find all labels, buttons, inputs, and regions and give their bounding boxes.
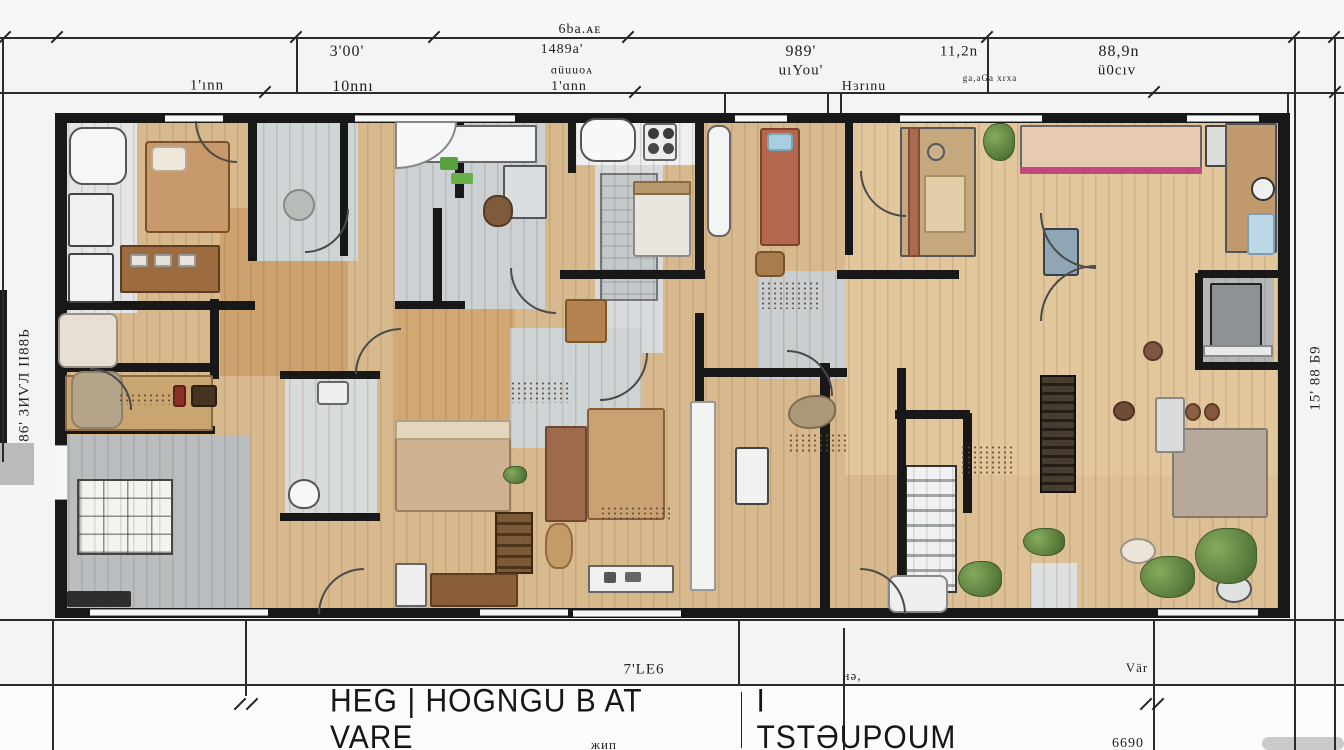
dimension-tick xyxy=(246,698,259,711)
wall-segment xyxy=(340,113,348,256)
dimension-text: 6690 xyxy=(1112,736,1144,750)
washer-bottom xyxy=(735,447,769,505)
wall-segment xyxy=(1195,273,1203,370)
dimension-text: 11,2n xyxy=(940,44,978,61)
pot-b xyxy=(1113,401,1135,421)
bed-center xyxy=(587,408,665,520)
side-table xyxy=(755,251,785,277)
cabinet-row xyxy=(120,245,220,293)
plant xyxy=(503,466,527,484)
dimension-text: ü0cıv xyxy=(1098,63,1136,80)
dimension-line xyxy=(0,37,1344,39)
tv-unit xyxy=(1210,283,1262,351)
pink-strip xyxy=(1020,167,1202,174)
sofa-cushions xyxy=(58,313,118,368)
floor-texture-marks xyxy=(960,445,1015,475)
wall-segment xyxy=(568,113,576,173)
window-opening xyxy=(900,115,1042,122)
dark-jars xyxy=(191,385,217,407)
basket xyxy=(545,523,573,569)
toilet xyxy=(288,479,320,509)
dimension-text: ga,aGa xrxa xyxy=(963,73,1017,83)
floor-texture-marks xyxy=(510,381,572,403)
wall-segment xyxy=(895,410,970,419)
dimension-text: uıYou' xyxy=(779,63,824,80)
dimension-line xyxy=(2,37,4,462)
title-block: HEG | HOGNGU B AT VARE I TSTƏUPOUM xyxy=(330,688,970,750)
plant xyxy=(1195,528,1257,584)
bathtub-vertical xyxy=(707,125,731,237)
wall-segment xyxy=(248,113,257,261)
plant xyxy=(958,561,1002,597)
kitchen-cabinets-right xyxy=(1020,125,1202,171)
window-opening xyxy=(480,609,568,616)
pot-d xyxy=(1204,403,1220,421)
washer-b xyxy=(68,253,114,303)
wall-segment xyxy=(1198,270,1282,278)
dimension-line xyxy=(738,619,740,685)
burner-c xyxy=(648,143,659,154)
bookcase-dark xyxy=(1040,375,1076,493)
dimension-line xyxy=(987,37,989,93)
mosaic-strip xyxy=(908,127,920,257)
tv-strip xyxy=(1203,345,1273,357)
cabinet-door-b xyxy=(154,254,172,267)
dimension-text: 15' 88 Б9 xyxy=(1308,345,1325,410)
wall-segment xyxy=(837,270,959,279)
dimension-text: Hɜrınu xyxy=(842,79,887,95)
dimension-text: 88,9n xyxy=(1099,43,1140,61)
floor-texture-marks xyxy=(760,281,818,309)
burner-d xyxy=(663,143,674,154)
window-opening xyxy=(90,609,268,616)
wall-segment xyxy=(280,513,380,521)
dimension-text: 86' ЗИѴЛ ІІ88Ь xyxy=(17,328,34,442)
garage-strip xyxy=(67,591,131,607)
bathtub-top xyxy=(580,118,636,162)
pillow-tl xyxy=(151,146,187,172)
window-opening xyxy=(1158,609,1258,616)
dimension-text: ɑüuuoᴀ xyxy=(551,63,593,78)
dimension-line xyxy=(827,92,829,114)
dimension-text: ʜə, xyxy=(843,668,862,684)
fridge-bottom xyxy=(395,563,427,607)
staircase xyxy=(905,465,957,593)
counter-bottom xyxy=(430,573,518,607)
plant xyxy=(1023,528,1065,556)
door-swing-arc xyxy=(355,328,401,374)
green-item-a xyxy=(440,157,458,170)
title-text-right: I TSTƏUPOUM xyxy=(756,683,970,750)
sink xyxy=(317,381,349,405)
title-text-left: HEG | HOGNGU B AT VARE xyxy=(330,683,727,750)
shower-glass xyxy=(1247,213,1275,255)
wall-segment xyxy=(845,113,853,255)
floor-texture-marks xyxy=(788,433,850,453)
shower-panel xyxy=(924,175,966,233)
blueprint-canvas: 1'ınn3'00'10nnı6ba.ᴀᴇ1489a'ɑüuuoᴀ1'ɑnn98… xyxy=(0,0,1344,750)
green-item-b xyxy=(451,173,473,184)
floor-texture-marks xyxy=(600,506,672,522)
dimension-line xyxy=(1153,619,1155,750)
dimension-line xyxy=(840,92,842,114)
window-opening xyxy=(1187,115,1259,122)
title-divider xyxy=(741,692,743,748)
plant xyxy=(1140,556,1195,598)
wall-segment xyxy=(1198,362,1282,370)
dimension-line xyxy=(1334,37,1336,750)
burner-b xyxy=(663,128,674,139)
burner-a xyxy=(648,128,659,139)
wall-segment xyxy=(695,113,704,273)
bathtub-tl xyxy=(69,127,127,185)
wood-table xyxy=(565,299,607,343)
blueprint-sketch xyxy=(77,479,173,555)
dimension-line xyxy=(1294,37,1296,750)
small-bath-floor xyxy=(1031,563,1077,608)
dimension-text: 7'LE6 xyxy=(623,662,664,679)
stool-dark xyxy=(483,195,513,227)
dimension-line xyxy=(1287,92,1289,114)
dimension-line xyxy=(245,619,247,696)
shelf-brown xyxy=(495,512,533,574)
plant xyxy=(983,123,1015,161)
dimension-text: 1'ınn xyxy=(190,78,224,95)
window-opening xyxy=(55,445,67,500)
pot-a xyxy=(1143,341,1163,361)
shower-head xyxy=(927,143,945,161)
dimension-text: 3'00' xyxy=(330,43,365,61)
dresser-icon-a xyxy=(604,572,616,583)
dimension-text: 1'ɑnn xyxy=(551,79,587,95)
cabinet-door-c xyxy=(178,254,196,267)
pillow-blue xyxy=(767,133,793,151)
wall-segment xyxy=(560,270,705,279)
window-opening xyxy=(735,115,787,122)
wall-segment xyxy=(433,208,442,308)
chairs-white xyxy=(1155,397,1185,453)
washer-drum xyxy=(1251,177,1275,201)
dimension-text: 10nnı xyxy=(332,78,373,96)
dimension-text: 989' xyxy=(786,43,817,61)
door-swing-arc xyxy=(318,568,364,614)
dimension-line xyxy=(296,37,298,93)
dimension-text: Vär xyxy=(1126,660,1149,676)
headboard-small xyxy=(633,181,691,195)
dimension-text: 6ba.ᴀᴇ xyxy=(559,22,602,38)
cabinet-door-a xyxy=(130,254,148,267)
wall-segment xyxy=(395,301,465,309)
rug-bottom-right xyxy=(1172,428,1268,518)
dresser-icon-b xyxy=(625,572,641,582)
wardrobe-column xyxy=(690,401,716,591)
bed-left-pillows xyxy=(395,420,511,440)
dimension-line xyxy=(724,92,726,114)
dimension-line xyxy=(0,619,1344,621)
floor-plan xyxy=(55,113,1290,618)
pot-c xyxy=(1185,403,1201,421)
headboard-center xyxy=(545,426,587,522)
dimension-text: 1489a' xyxy=(541,42,584,58)
dimension-line xyxy=(52,619,54,750)
washer-a xyxy=(68,193,114,247)
wall-segment xyxy=(55,113,1290,123)
window-opening xyxy=(573,610,681,617)
floor-texture-marks xyxy=(118,393,178,405)
